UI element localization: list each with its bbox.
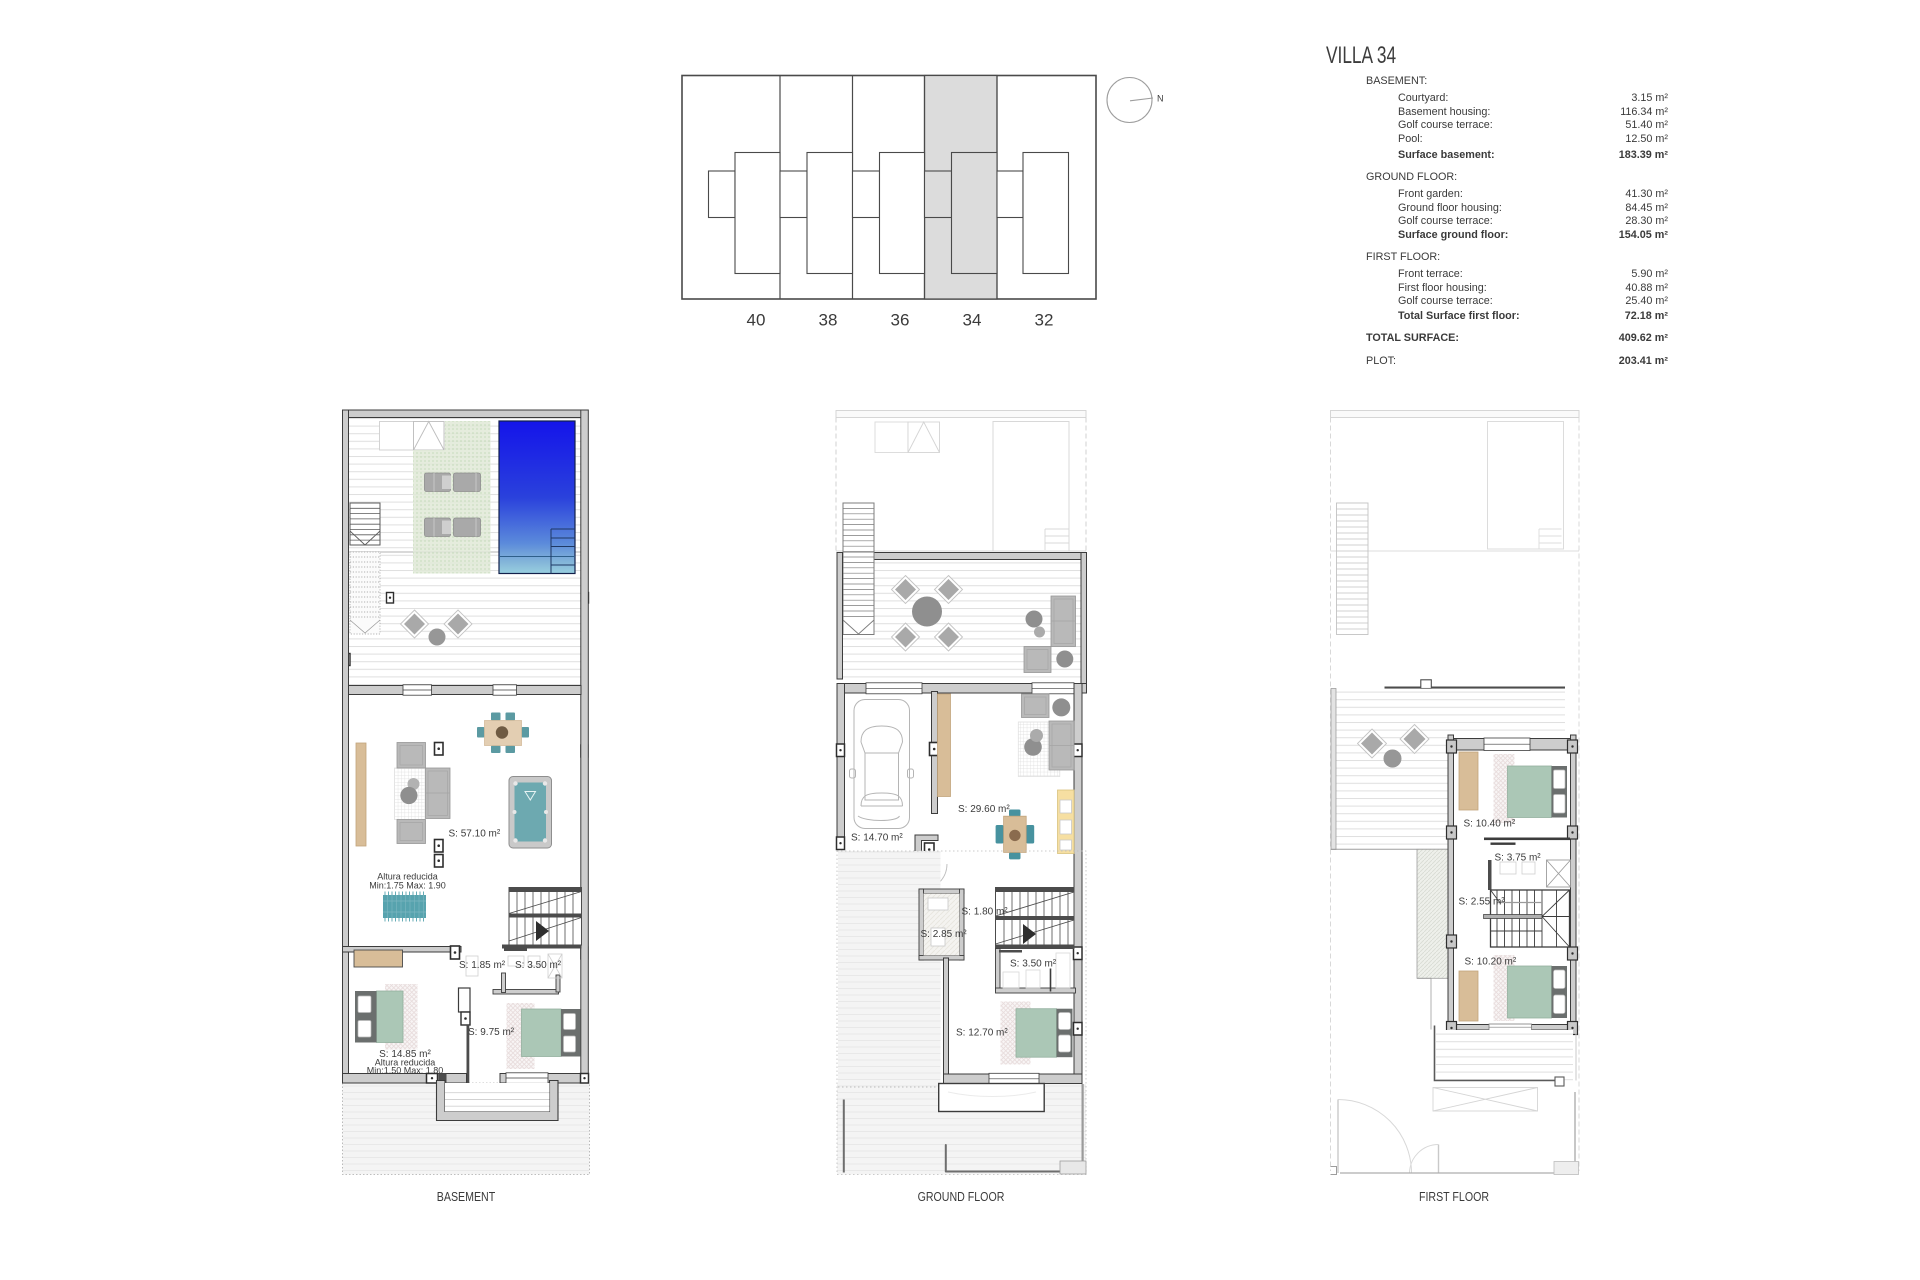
svg-text:S: 14.70 m²: S: 14.70 m² <box>851 833 903 844</box>
svg-text:S: 3.75 m²: S: 3.75 m² <box>1495 853 1542 864</box>
svg-text:40: 40 <box>747 311 766 330</box>
svg-text:S: 12.70 m²: S: 12.70 m² <box>956 1028 1008 1039</box>
svg-text:S: 10.40 m²: S: 10.40 m² <box>1464 819 1516 830</box>
svg-text:36: 36 <box>891 311 910 330</box>
svg-text:S: 1.85 m²: S: 1.85 m² <box>459 960 506 971</box>
svg-text:32: 32 <box>1035 311 1054 330</box>
svg-text:S: 2.55 m²: S: 2.55 m² <box>1459 897 1506 908</box>
svg-text:S: 3.50 m²: S: 3.50 m² <box>515 960 562 971</box>
svg-text:S: 3.50 m²: S: 3.50 m² <box>1010 959 1057 970</box>
svg-text:34: 34 <box>963 311 982 330</box>
svg-text:S: 57.10 m²: S: 57.10 m² <box>449 829 501 840</box>
svg-text:38: 38 <box>819 311 838 330</box>
svg-text:Min:1.75 Max: 1.90: Min:1.75 Max: 1.90 <box>369 881 446 891</box>
svg-text:Min:1.50 Max: 1.80: Min:1.50 Max: 1.80 <box>367 1066 444 1076</box>
svg-text:N: N <box>1157 94 1164 104</box>
svg-text:S: 1.80 m²: S: 1.80 m² <box>962 907 1009 918</box>
svg-text:S: 2.85 m²: S: 2.85 m² <box>921 929 968 940</box>
svg-text:S: 29.60 m²: S: 29.60 m² <box>958 804 1010 815</box>
svg-text:S: 9.75 m²: S: 9.75 m² <box>468 1027 515 1038</box>
